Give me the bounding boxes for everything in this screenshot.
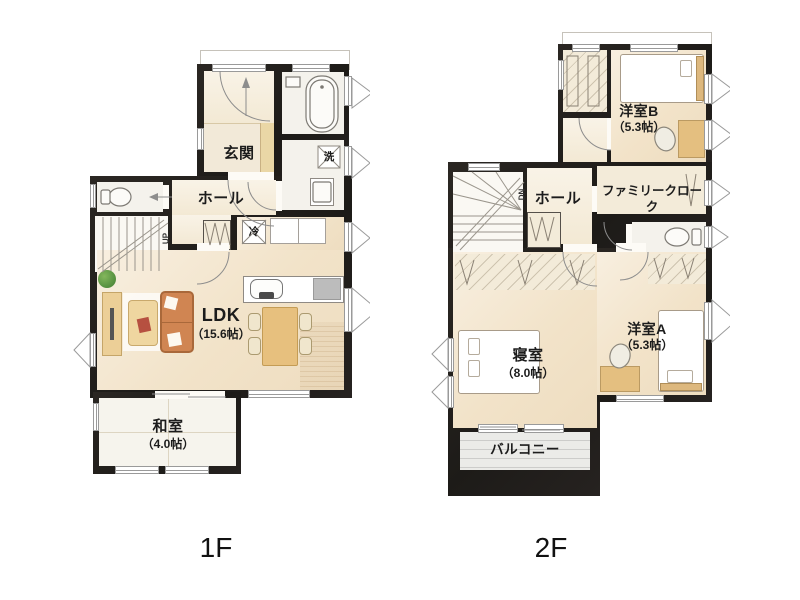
label-shinshitsu: 寝室（8.0帖） <box>482 346 574 381</box>
caption-1f: 1F <box>186 532 246 564</box>
floorplan-page: 玄関 ホール LDK（15.6帖） 和室（4.0帖） 洗 冷 UP <box>0 0 800 600</box>
symbol-stairs-down: DN <box>518 183 527 207</box>
linework-2f <box>420 20 730 490</box>
label-ldk-name: LDK <box>202 305 241 325</box>
symbol-fridge: 冷 <box>242 220 266 244</box>
caption-2f: 2F <box>521 532 581 564</box>
label-yoshitsu-b-name: 洋室B <box>619 103 659 119</box>
label-washitsu: 和室（4.0帖） <box>123 417 213 452</box>
label-ldk-size: （15.6帖） <box>176 327 266 343</box>
label-yoshitsu-a-size: （5.3帖） <box>603 338 691 354</box>
label-yoshitsu-b: 洋室B（5.3帖） <box>595 102 683 136</box>
symbol-stairs-up: UP <box>162 227 171 251</box>
label-family-cloak: ファミリークローク <box>597 183 707 216</box>
floorplan-2f: 洋室B（5.3帖） ホール ファミリークローク 寝室（8.0帖） 洋室A（5.3… <box>420 20 730 490</box>
label-hall-2f: ホール <box>513 189 603 209</box>
linework-1f <box>60 20 370 490</box>
label-genkan: 玄関 <box>194 144 284 164</box>
label-hall-1f: ホール <box>176 189 266 209</box>
label-shinshitsu-name: 寝室 <box>512 347 543 364</box>
floorplan-1f: 玄関 ホール LDK（15.6帖） 和室（4.0帖） 洗 冷 UP <box>60 20 370 490</box>
label-shinshitsu-size: （8.0帖） <box>482 366 574 382</box>
symbol-laundry: 洗 <box>318 146 340 168</box>
label-washitsu-size: （4.0帖） <box>123 437 213 453</box>
label-yoshitsu-b-size: （5.3帖） <box>595 120 683 136</box>
label-yoshitsu-a: 洋室A（5.3帖） <box>603 320 691 354</box>
label-ldk: LDK（15.6帖） <box>176 304 266 343</box>
label-washitsu-name: 和室 <box>152 418 183 435</box>
label-balcony: バルコニー <box>465 441 585 459</box>
label-yoshitsu-a-name: 洋室A <box>627 321 667 337</box>
